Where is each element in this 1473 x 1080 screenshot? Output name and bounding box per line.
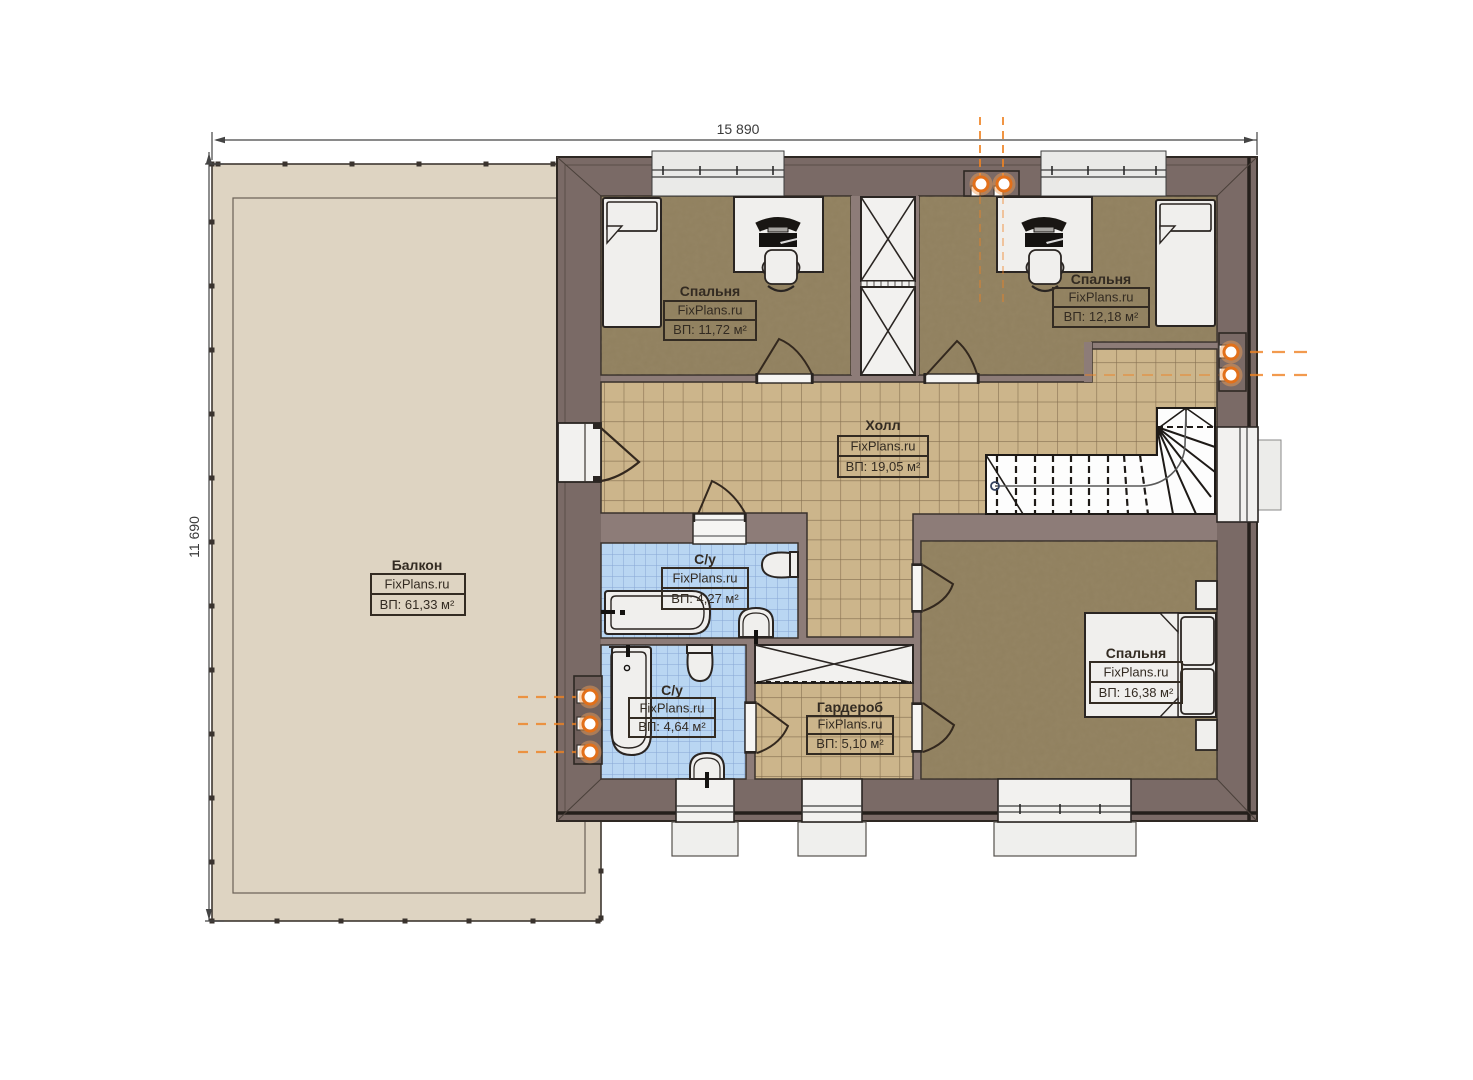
svg-text:FixPlans.ru: FixPlans.ru bbox=[850, 439, 915, 454]
svg-text:Гардероб: Гардероб bbox=[817, 699, 884, 715]
svg-text:ВП: 5,10 м²: ВП: 5,10 м² bbox=[816, 736, 884, 751]
svg-text:Холл: Холл bbox=[865, 417, 900, 433]
svg-text:ВП: 61,33 м²: ВП: 61,33 м² bbox=[380, 597, 455, 612]
svg-text:ВП: 16,38 м²: ВП: 16,38 м² bbox=[1099, 685, 1174, 700]
svg-text:ВП: 4,27 м²: ВП: 4,27 м² bbox=[671, 591, 739, 606]
svg-text:Спальня: Спальня bbox=[680, 283, 740, 299]
svg-text:FixPlans.ru: FixPlans.ru bbox=[677, 303, 742, 318]
svg-text:ВП: 11,72 м²: ВП: 11,72 м² bbox=[673, 322, 747, 337]
svg-text:ВП: 12,18 м²: ВП: 12,18 м² bbox=[1064, 309, 1139, 324]
svg-text:С/у: С/у bbox=[694, 551, 716, 567]
svg-text:С/у: С/у bbox=[661, 682, 683, 698]
svg-text:ВП: 4,64 м²: ВП: 4,64 м² bbox=[638, 719, 706, 734]
svg-text:Балкон: Балкон bbox=[392, 557, 443, 573]
svg-text:FixPlans.ru: FixPlans.ru bbox=[639, 701, 704, 716]
svg-text:Спальня: Спальня bbox=[1071, 271, 1131, 287]
svg-text:ВП: 19,05 м²: ВП: 19,05 м² bbox=[846, 459, 921, 474]
svg-text:15 890: 15 890 bbox=[717, 121, 760, 137]
svg-text:FixPlans.ru: FixPlans.ru bbox=[817, 717, 882, 732]
svg-text:Спальня: Спальня bbox=[1106, 645, 1166, 661]
svg-text:FixPlans.ru: FixPlans.ru bbox=[1103, 665, 1168, 680]
svg-text:FixPlans.ru: FixPlans.ru bbox=[384, 577, 449, 592]
svg-text:11 690: 11 690 bbox=[186, 516, 202, 558]
svg-text:FixPlans.ru: FixPlans.ru bbox=[1068, 290, 1133, 305]
svg-text:FixPlans.ru: FixPlans.ru bbox=[672, 571, 737, 586]
